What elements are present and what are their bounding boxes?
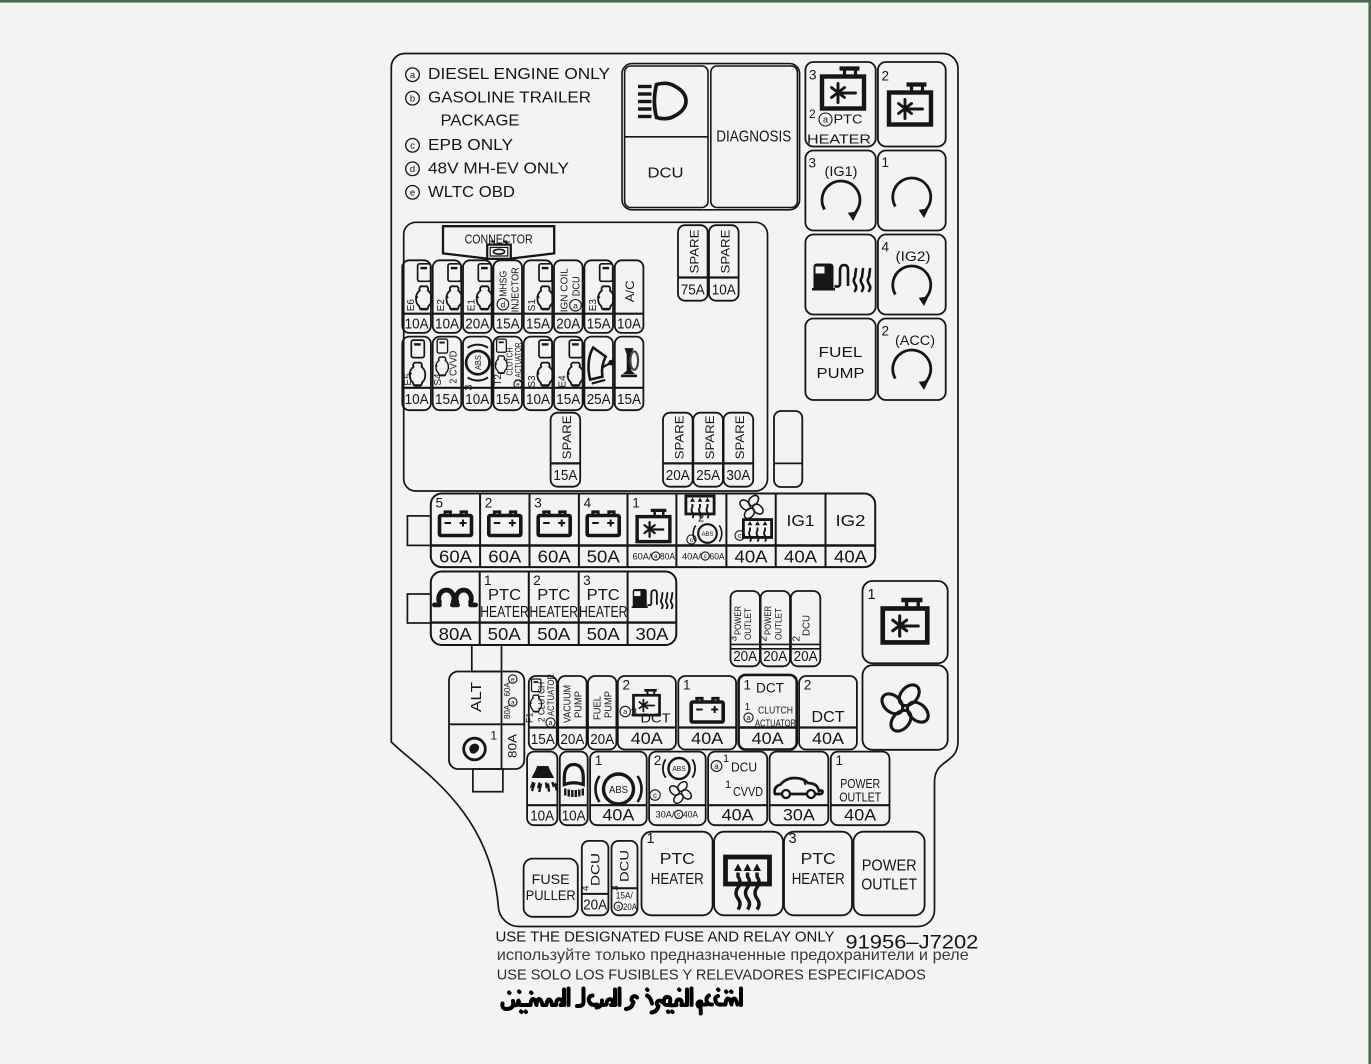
- svg-text:40A: 40A: [735, 546, 768, 566]
- svg-text:PUMP: PUMP: [574, 691, 585, 718]
- svg-text:HEATER: HEATER: [807, 133, 871, 147]
- svg-text:E6: E6: [406, 299, 417, 312]
- svg-text:3 ACTUATOR: 3 ACTUATOR: [514, 342, 523, 382]
- svg-text:1: 1: [647, 831, 655, 847]
- svg-text:T2: T2: [493, 373, 504, 385]
- svg-text:DIESEL ENGINE ONLY: DIESEL ENGINE ONLY: [428, 66, 610, 83]
- svg-text:1: 1: [490, 729, 497, 743]
- svg-text:10A: 10A: [465, 392, 489, 408]
- svg-text:HEATER: HEATER: [651, 871, 704, 888]
- svg-text:15A: 15A: [435, 392, 459, 408]
- svg-text:используйте только предназначе: используйте только предназначенные предо…: [497, 947, 969, 964]
- svg-text:HEATER: HEATER: [579, 604, 628, 621]
- svg-text:FUEL: FUEL: [593, 696, 604, 720]
- svg-text:20A: 20A: [733, 649, 757, 665]
- svg-text:40A: 40A: [834, 546, 867, 566]
- svg-text:DCU: DCU: [648, 166, 684, 182]
- svg-text:60A: 60A: [439, 546, 472, 566]
- svg-text:(ACC): (ACC): [895, 333, 935, 348]
- svg-text:15A/: 15A/: [616, 891, 633, 901]
- svg-text:40A: 40A: [602, 806, 635, 825]
- svg-text:3: 3: [789, 831, 797, 847]
- svg-text:SPARE: SPARE: [735, 415, 747, 459]
- svg-text:2: 2: [698, 513, 704, 525]
- svg-text:USE THE DESIGNATED FUSE AN: USE THE DESIGNATED FUSE AND RELAY ONLY: [496, 928, 835, 945]
- svg-text:c: c: [704, 553, 707, 560]
- svg-text:a: a: [573, 300, 578, 310]
- svg-text:PULLER: PULLER: [526, 888, 576, 903]
- svg-text:20A: 20A: [583, 898, 607, 914]
- svg-text:DCT: DCT: [756, 681, 784, 696]
- svg-text:80A: 80A: [508, 734, 520, 758]
- svg-text:2: 2: [654, 753, 662, 768]
- svg-text:1: 1: [595, 753, 603, 768]
- svg-text:20A: 20A: [556, 317, 580, 333]
- svg-text:POWER: POWER: [862, 858, 917, 875]
- svg-text:3: 3: [631, 708, 637, 720]
- svg-text:60A: 60A: [710, 551, 726, 562]
- svg-text:F1: F1: [525, 712, 535, 723]
- svg-text:20A: 20A: [560, 732, 584, 748]
- svg-text:POWER: POWER: [733, 606, 743, 635]
- svg-text:E1: E1: [467, 299, 478, 312]
- svg-text:SPARE: SPARE: [721, 229, 733, 273]
- svg-text:3: 3: [583, 573, 591, 588]
- svg-text:SPARE: SPARE: [705, 415, 717, 459]
- svg-text:40A: 40A: [812, 729, 845, 748]
- svg-text:40A: 40A: [784, 546, 817, 566]
- svg-text:25A: 25A: [696, 468, 720, 484]
- svg-text:15A: 15A: [526, 317, 550, 333]
- svg-text:DCU: DCU: [571, 276, 582, 296]
- svg-text:10A: 10A: [435, 317, 459, 333]
- svg-text:10A: 10A: [712, 282, 736, 298]
- svg-text:a: a: [714, 762, 719, 771]
- svg-text:a: a: [410, 70, 416, 81]
- svg-text:30A: 30A: [726, 468, 750, 484]
- svg-text:40A/: 40A/: [682, 551, 701, 562]
- svg-text:WLTC OBD: WLTC OBD: [428, 184, 515, 201]
- svg-text:4: 4: [581, 885, 592, 891]
- svg-text:75A: 75A: [681, 282, 705, 298]
- svg-text:15A: 15A: [556, 392, 580, 408]
- svg-text:30A: 30A: [636, 624, 669, 644]
- svg-text:15A: 15A: [496, 392, 520, 408]
- svg-text:40A: 40A: [844, 806, 877, 825]
- svg-text:IG2: IG2: [836, 513, 866, 530]
- svg-text:DCU: DCU: [731, 761, 757, 775]
- svg-text:HEATER: HEATER: [480, 604, 529, 621]
- svg-text:ACTUATOR: ACTUATOR: [755, 719, 796, 730]
- svg-text:1: 1: [723, 753, 729, 765]
- svg-text:IGN COIL: IGN COIL: [559, 268, 570, 312]
- svg-text:4: 4: [584, 496, 592, 511]
- svg-text:10A: 10A: [526, 392, 550, 408]
- svg-text:FUSE: FUSE: [532, 872, 570, 887]
- svg-text:INJECTOR: INJECTOR: [511, 267, 522, 312]
- svg-text:1: 1: [868, 587, 876, 603]
- svg-text:2: 2: [759, 636, 770, 642]
- svg-text:2: 2: [804, 678, 812, 693]
- svg-text:DCU: DCU: [620, 850, 632, 882]
- svg-text:20A: 20A: [763, 649, 787, 665]
- svg-text:40A: 40A: [683, 810, 699, 821]
- svg-text:1: 1: [484, 573, 492, 588]
- svg-text:1: 1: [836, 753, 844, 768]
- svg-text:PTC: PTC: [834, 113, 863, 127]
- svg-text:DCU: DCU: [800, 615, 812, 636]
- svg-text:IG1: IG1: [787, 513, 815, 530]
- svg-text:10A: 10A: [405, 317, 429, 333]
- svg-text:60A: 60A: [503, 682, 512, 697]
- svg-text:OUTLET: OUTLET: [839, 791, 881, 805]
- svg-text:1: 1: [745, 701, 751, 713]
- svg-text:ACTUATOR: ACTUATOR: [546, 674, 556, 716]
- svg-text:USE SOLO LOS FUSIBLES Y RELEVA: USE SOLO LOS FUSIBLES Y RELEVADORES ESPE…: [497, 968, 926, 984]
- svg-text:2 CLUTCH: 2 CLUTCH: [537, 682, 547, 722]
- svg-text:50A: 50A: [587, 624, 620, 644]
- svg-text:40A: 40A: [722, 806, 755, 825]
- svg-text:80A: 80A: [503, 704, 512, 719]
- svg-text:60A/: 60A/: [633, 551, 652, 562]
- svg-text:60A: 60A: [488, 546, 521, 566]
- svg-text:E5: E5: [403, 373, 414, 386]
- svg-text:E4: E4: [558, 375, 569, 388]
- svg-text:EPB ONLY: EPB ONLY: [428, 137, 513, 154]
- svg-text:a: a: [616, 904, 620, 911]
- svg-text:48V MH-EV ONLY: 48V MH-EV ONLY: [428, 160, 569, 177]
- svg-text:2: 2: [882, 324, 890, 339]
- svg-text:10A: 10A: [530, 809, 554, 825]
- svg-text:3: 3: [809, 156, 817, 171]
- svg-text:20A: 20A: [590, 732, 614, 748]
- svg-text:(IG1): (IG1): [825, 164, 858, 179]
- svg-text:DCT: DCT: [812, 709, 846, 726]
- svg-text:50A: 50A: [537, 624, 570, 644]
- svg-text:10A: 10A: [562, 809, 586, 825]
- svg-text:1: 1: [882, 155, 890, 170]
- svg-text:a: a: [823, 115, 828, 125]
- svg-text:3: 3: [534, 496, 542, 511]
- svg-text:15A: 15A: [553, 468, 577, 484]
- svg-text:2 CVVD: 2 CVVD: [449, 351, 460, 384]
- svg-text:PACKAGE: PACKAGE: [441, 112, 520, 129]
- svg-text:1: 1: [744, 678, 752, 693]
- svg-text:2: 2: [809, 107, 816, 121]
- svg-text:CVVD: CVVD: [733, 785, 763, 799]
- svg-text:30A: 30A: [783, 806, 816, 825]
- svg-text:HEATER: HEATER: [792, 871, 845, 888]
- svg-text:50A: 50A: [587, 546, 620, 566]
- svg-text:4: 4: [882, 240, 890, 255]
- svg-text:POWER: POWER: [840, 777, 880, 791]
- svg-text:SPARE: SPARE: [675, 415, 687, 459]
- svg-text:a: a: [654, 553, 658, 560]
- svg-text:2: 2: [485, 496, 493, 511]
- svg-text:S3: S3: [527, 375, 538, 388]
- svg-text:2: 2: [882, 69, 890, 84]
- svg-text:2: 2: [533, 573, 541, 588]
- svg-text:GASOLINE TRAILER: GASOLINE TRAILER: [428, 90, 591, 107]
- svg-text:(IG2): (IG2): [896, 249, 931, 264]
- svg-text:ALT: ALT: [469, 682, 485, 712]
- svg-text:HEATER: HEATER: [530, 604, 579, 621]
- svg-text:20A: 20A: [794, 649, 818, 665]
- svg-text:40A: 40A: [631, 729, 664, 748]
- svg-text:50A: 50A: [488, 624, 521, 644]
- svg-text:E3: E3: [588, 299, 599, 312]
- svg-text:1: 1: [725, 779, 731, 791]
- svg-text:OUTLET: OUTLET: [743, 608, 753, 640]
- svg-text:60A: 60A: [538, 546, 571, 566]
- svg-text:80A: 80A: [660, 551, 676, 562]
- svg-text:2: 2: [623, 678, 631, 693]
- svg-text:d: d: [501, 299, 506, 309]
- svg-text:OUTLET: OUTLET: [861, 877, 917, 894]
- svg-text:SPARE: SPARE: [690, 229, 702, 273]
- svg-text:POWER: POWER: [763, 606, 773, 635]
- svg-text:PTC: PTC: [488, 587, 521, 604]
- svg-text:1: 1: [632, 496, 640, 511]
- svg-text:a: a: [747, 715, 751, 722]
- svg-text:e: e: [410, 188, 415, 199]
- svg-text:10A: 10A: [617, 317, 641, 333]
- svg-text:S1: S1: [527, 299, 538, 312]
- svg-text:20A: 20A: [623, 902, 637, 912]
- svg-text:FUEL: FUEL: [819, 344, 863, 361]
- svg-text:20A: 20A: [666, 468, 690, 484]
- svg-text:PTC: PTC: [660, 851, 695, 868]
- svg-text:DCT: DCT: [641, 712, 671, 726]
- svg-text:OUTLET: OUTLET: [773, 608, 783, 640]
- svg-text:b: b: [410, 94, 415, 105]
- svg-text:20A: 20A: [465, 317, 489, 333]
- svg-text:a: a: [511, 699, 515, 706]
- svg-text:PUMP: PUMP: [604, 691, 615, 718]
- svg-text:PTC: PTC: [587, 587, 620, 604]
- svg-text:PUMP: PUMP: [817, 365, 865, 382]
- svg-text:15A: 15A: [531, 732, 555, 748]
- svg-text:e: e: [511, 676, 515, 683]
- svg-text:15A: 15A: [496, 317, 520, 333]
- svg-text:3: 3: [463, 384, 475, 390]
- svg-text:S4: S4: [433, 373, 444, 386]
- svg-text:80A: 80A: [439, 624, 472, 644]
- svg-text:DIAGNOSIS: DIAGNOSIS: [716, 129, 791, 146]
- svg-text:15A: 15A: [617, 392, 641, 408]
- svg-text:10A: 10A: [405, 392, 429, 408]
- svg-text:c: c: [677, 812, 680, 819]
- svg-text:1: 1: [683, 678, 691, 693]
- svg-text:c: c: [410, 141, 415, 152]
- svg-text:MHSG: MHSG: [499, 271, 510, 297]
- svg-text:DCU: DCU: [591, 853, 603, 886]
- svg-text:15A: 15A: [587, 317, 611, 333]
- svg-text:VACUUM: VACUUM: [563, 685, 574, 723]
- svg-text:3: 3: [809, 68, 817, 83]
- svg-text:PTC: PTC: [537, 587, 570, 604]
- svg-text:c: c: [738, 531, 742, 540]
- svg-text:25A: 25A: [587, 392, 611, 408]
- svg-text:SPARE: SPARE: [562, 415, 574, 459]
- svg-text:d: d: [410, 164, 415, 175]
- svg-text:CLUTCH: CLUTCH: [758, 706, 793, 717]
- svg-text:40A: 40A: [752, 729, 785, 748]
- svg-text:3: 3: [729, 636, 740, 642]
- svg-text:E2: E2: [436, 299, 447, 312]
- svg-text:A/C: A/C: [623, 280, 637, 302]
- svg-text:5: 5: [436, 496, 444, 511]
- svg-text:40A: 40A: [691, 729, 724, 748]
- svg-text:PTC: PTC: [801, 851, 836, 868]
- svg-text:c: c: [653, 791, 657, 800]
- svg-text:30A/: 30A/: [656, 810, 675, 821]
- svg-text:a: a: [549, 720, 553, 727]
